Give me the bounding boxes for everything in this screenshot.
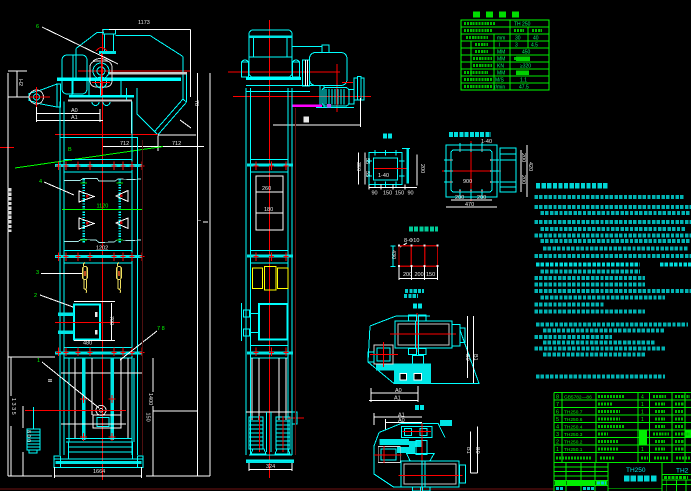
svg-text:1120: 1120 (97, 204, 109, 210)
svg-text:TH 250: TH 250 (514, 22, 531, 28)
svg-text:1: 1 (641, 447, 644, 453)
svg-text:2: 2 (34, 293, 37, 299)
svg-text:55: 55 (364, 171, 370, 177)
svg-text:260: 260 (262, 186, 271, 192)
svg-text:90: 90 (372, 191, 378, 197)
svg-text:800: 800 (25, 430, 31, 444)
svg-text:H2: H2 (17, 79, 23, 86)
svg-text:mm: mm (497, 36, 505, 42)
svg-text:200: 200 (520, 153, 526, 162)
svg-text:TH250: TH250 (626, 467, 646, 474)
svg-text:480: 480 (83, 341, 92, 347)
svg-text:200: 200 (415, 272, 424, 278)
svg-text:1-40: 1-40 (481, 139, 492, 145)
svg-text:430: 430 (390, 250, 396, 259)
svg-text:150: 150 (426, 272, 435, 278)
svg-text:1335: 1335 (10, 398, 16, 416)
svg-text:TH250.4: TH250.4 (564, 425, 583, 431)
svg-text:TH2: TH2 (676, 468, 689, 475)
svg-text:L: L (195, 220, 201, 223)
svg-text:TH250.7: TH250.7 (564, 410, 583, 416)
svg-text:1400: 1400 (147, 393, 153, 405)
svg-text:55: 55 (364, 158, 370, 164)
svg-text:r/min: r/min (494, 85, 505, 91)
svg-text:6: 6 (556, 410, 559, 416)
svg-text:1173: 1173 (138, 20, 150, 26)
svg-text:4: 4 (641, 395, 644, 401)
svg-text:200: 200 (455, 195, 464, 201)
svg-text:MM: MM (497, 71, 505, 77)
svg-text:700: 700 (108, 316, 114, 325)
svg-text:GB5782—86: GB5782—86 (564, 395, 592, 401)
svg-text:30: 30 (515, 36, 521, 42)
svg-text:1: 1 (37, 358, 40, 364)
svg-text:B0: B0 (464, 354, 470, 361)
svg-text:B: B (68, 147, 72, 153)
svg-text:3: 3 (556, 432, 559, 438)
svg-text:1202: 1202 (96, 246, 108, 252)
svg-text:B1: B1 (465, 447, 471, 454)
svg-text:A0: A0 (395, 388, 402, 394)
svg-text:324: 324 (266, 464, 275, 470)
svg-text:5: 5 (556, 417, 559, 423)
svg-text:KN: KN (497, 64, 504, 70)
svg-text:l: l (499, 43, 500, 49)
svg-text:TH250.3: TH250.3 (564, 432, 583, 438)
svg-text:200: 200 (419, 164, 425, 173)
svg-text:1-40: 1-40 (378, 173, 389, 179)
svg-text:4: 4 (39, 179, 42, 185)
svg-text:≥320: ≥320 (520, 64, 531, 70)
svg-text:420: 420 (527, 162, 533, 171)
svg-text:MM: MM (497, 50, 505, 56)
svg-text:78: 78 (193, 100, 199, 106)
svg-text:47.5: 47.5 (519, 85, 529, 91)
svg-text:3: 3 (515, 43, 518, 49)
svg-text:1: 1 (641, 402, 644, 408)
svg-text:6: 6 (36, 24, 39, 30)
svg-text:450: 450 (522, 50, 531, 56)
svg-text:1.1: 1.1 (520, 78, 527, 84)
svg-text:150: 150 (145, 413, 151, 422)
svg-text:4.5: 4.5 (531, 43, 538, 49)
svg-text:900: 900 (463, 179, 472, 185)
svg-text:150: 150 (383, 191, 392, 197)
svg-text:M/S: M/S (495, 78, 505, 84)
svg-text:1664: 1664 (93, 469, 105, 475)
svg-text:1: 1 (641, 410, 644, 416)
svg-text:3: 3 (36, 270, 39, 276)
svg-text:TH250.2: TH250.2 (564, 440, 583, 446)
svg-text:40: 40 (533, 36, 539, 42)
svg-text:TH250.6: TH250.6 (564, 417, 583, 423)
svg-text:B1: B1 (472, 354, 478, 361)
svg-text:1: 1 (556, 447, 559, 453)
svg-text:7 8: 7 8 (157, 326, 165, 332)
svg-text:A1: A1 (71, 115, 78, 121)
svg-text:180: 180 (264, 207, 273, 213)
svg-text:1: 1 (641, 417, 644, 423)
svg-text:4: 4 (556, 425, 559, 431)
svg-text:2: 2 (556, 440, 559, 446)
svg-text:A0: A0 (71, 108, 78, 114)
svg-text:470: 470 (465, 202, 474, 208)
svg-text:150: 150 (395, 191, 404, 197)
svg-text:200: 200 (477, 195, 486, 201)
svg-text:MM: MM (497, 57, 505, 63)
svg-text:712: 712 (120, 141, 129, 147)
svg-text:712: 712 (172, 141, 181, 147)
svg-text:TH250.1: TH250.1 (564, 447, 583, 453)
svg-text:B0: B0 (474, 447, 480, 454)
svg-text:8: 8 (556, 395, 559, 401)
svg-text:200: 200 (403, 272, 412, 278)
svg-text:7: 7 (556, 402, 559, 408)
svg-text:90: 90 (408, 191, 414, 197)
svg-text:350: 350 (355, 162, 361, 171)
svg-text:A1: A1 (394, 396, 401, 402)
svg-text:II: II (46, 379, 52, 383)
svg-text:200: 200 (520, 175, 526, 184)
